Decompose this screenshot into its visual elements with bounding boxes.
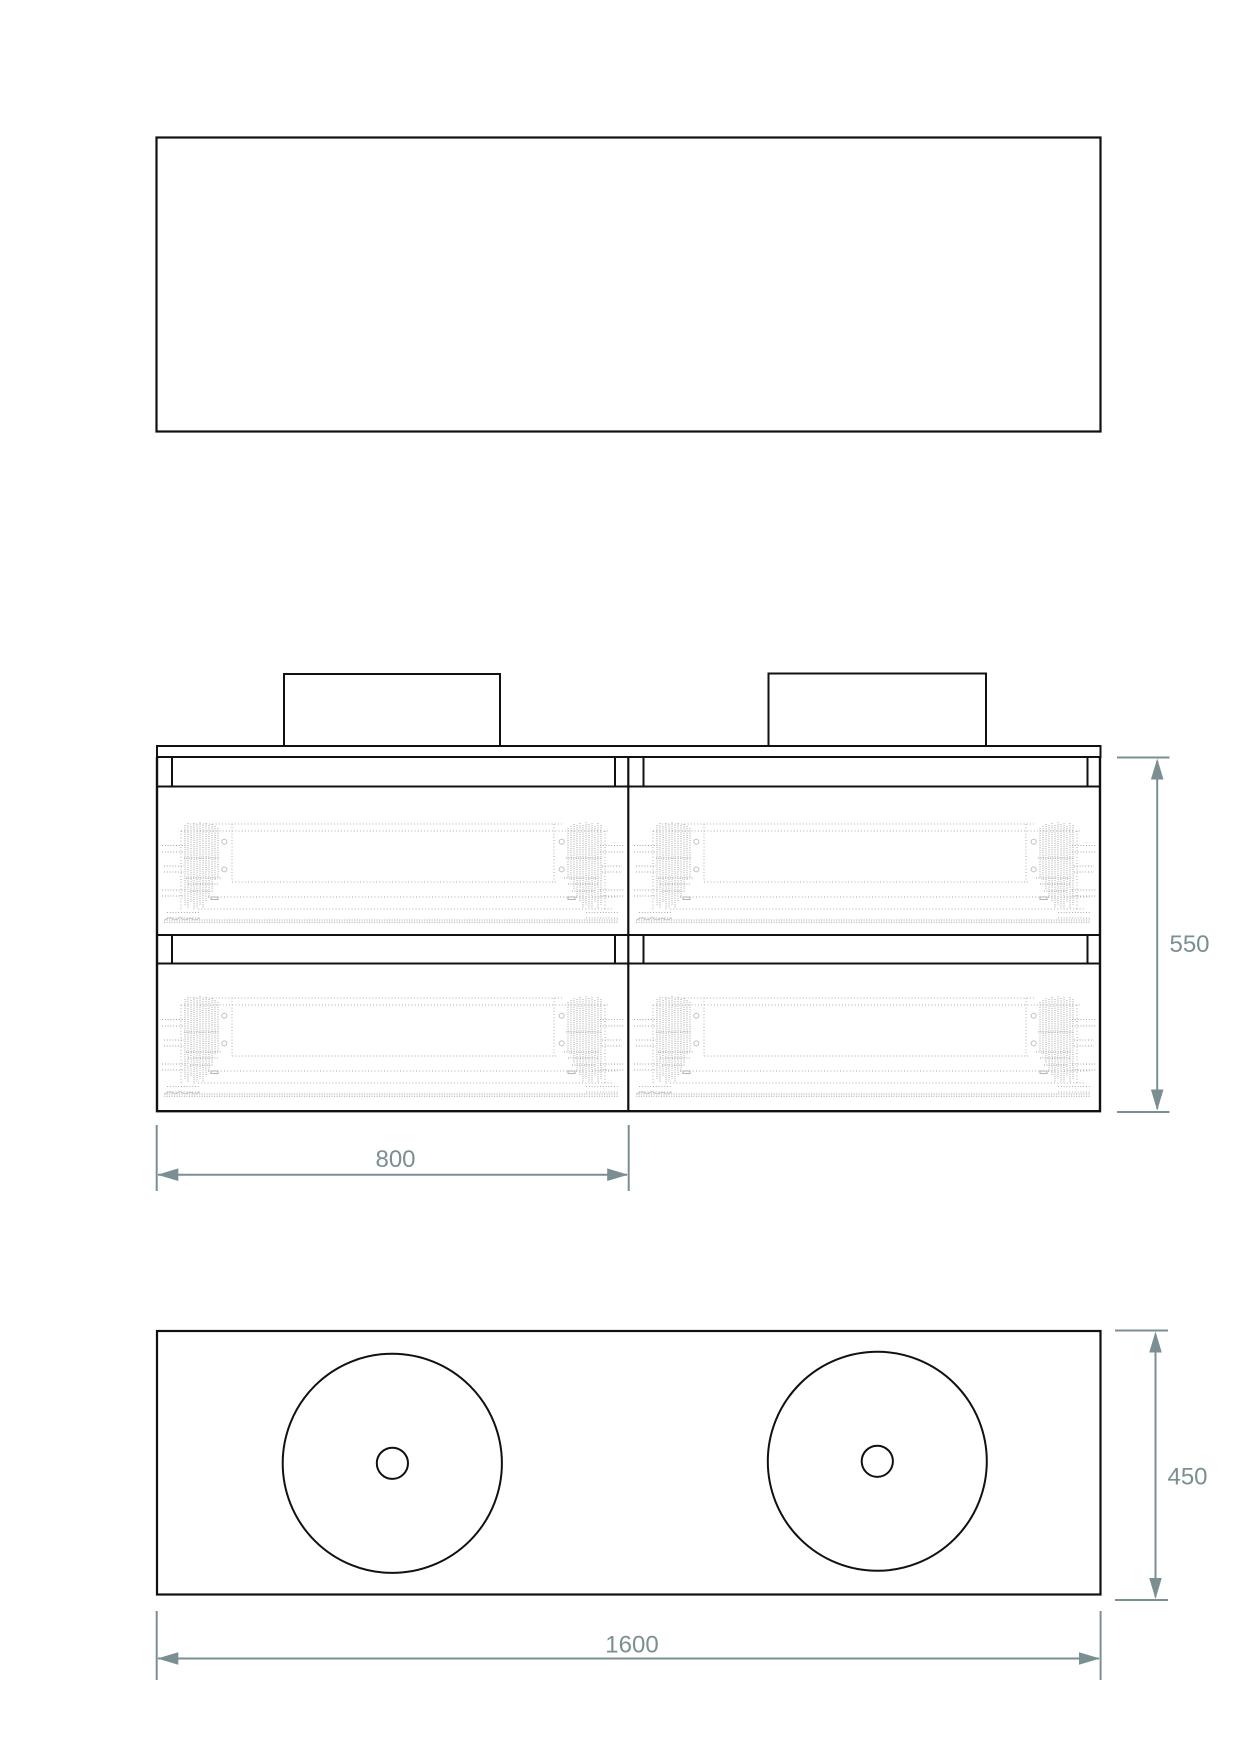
svg-text:800: 800 <box>375 1146 415 1173</box>
svg-text:450: 450 <box>1167 1464 1207 1491</box>
svg-text:1600: 1600 <box>605 1632 658 1659</box>
svg-text:550: 550 <box>1169 931 1209 958</box>
